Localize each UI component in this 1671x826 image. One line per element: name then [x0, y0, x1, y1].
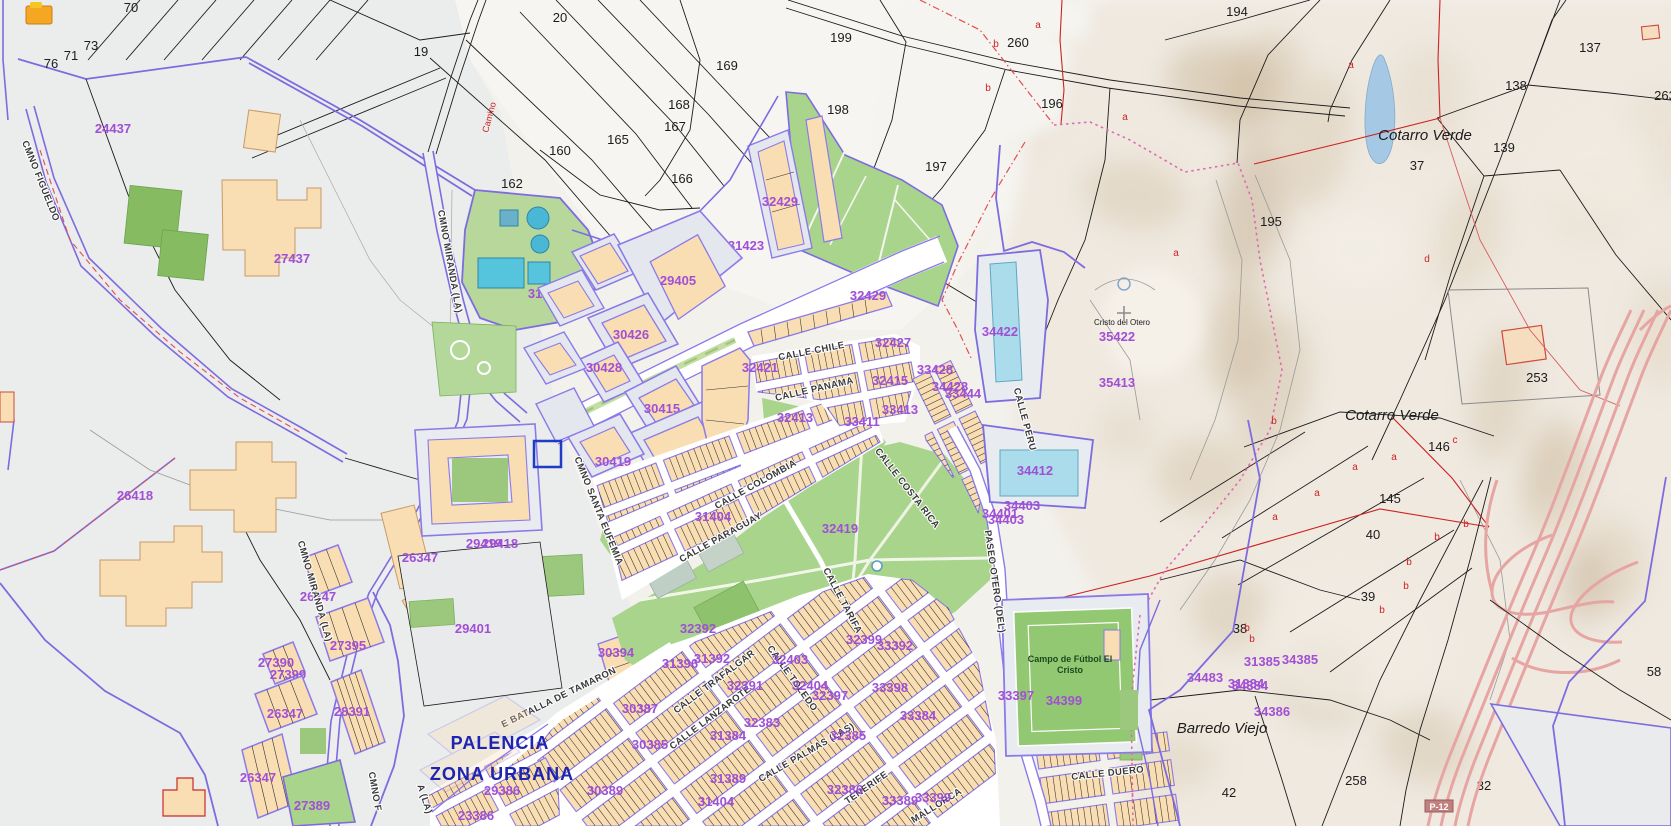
svg-text:39: 39	[1361, 589, 1375, 604]
svg-text:32421: 32421	[742, 360, 778, 375]
svg-text:b: b	[1271, 416, 1277, 427]
svg-text:19: 19	[414, 44, 428, 59]
svg-text:23386: 23386	[458, 808, 494, 823]
svg-text:31396: 31396	[662, 656, 698, 671]
svg-text:34385: 34385	[1282, 652, 1318, 667]
svg-text:30389: 30389	[587, 783, 623, 798]
svg-text:33392: 33392	[877, 638, 913, 653]
svg-text:35413: 35413	[1099, 375, 1135, 390]
svg-text:a: a	[1352, 462, 1358, 473]
svg-text:195: 195	[1260, 214, 1282, 229]
svg-text:70: 70	[124, 0, 138, 15]
svg-text:26418: 26418	[117, 488, 153, 503]
svg-text:253: 253	[1526, 370, 1548, 385]
svg-text:a: a	[1122, 112, 1128, 123]
svg-text:27437: 27437	[274, 251, 310, 266]
svg-text:31392: 31392	[694, 651, 730, 666]
svg-text:29386: 29386	[484, 783, 520, 798]
svg-text:b: b	[1434, 532, 1440, 543]
svg-text:34386: 34386	[1254, 704, 1290, 719]
svg-text:199: 199	[830, 30, 852, 45]
svg-text:32427: 32427	[875, 335, 911, 350]
svg-text:258: 258	[1345, 773, 1367, 788]
svg-text:20: 20	[553, 10, 567, 25]
svg-text:32391: 32391	[727, 678, 763, 693]
svg-text:30394: 30394	[598, 645, 635, 660]
svg-text:Cotarro Verde: Cotarro Verde	[1378, 127, 1472, 144]
svg-text:Campo de Fútbol El: Campo de Fútbol El	[1028, 654, 1113, 664]
svg-text:b: b	[993, 39, 999, 50]
svg-text:32429: 32429	[762, 194, 798, 209]
svg-text:a: a	[1348, 60, 1354, 71]
svg-text:35422: 35422	[1099, 329, 1135, 344]
svg-text:31384: 31384	[1228, 676, 1265, 691]
svg-text:b: b	[1249, 634, 1255, 645]
svg-text:Barredo Viejo: Barredo Viejo	[1177, 720, 1268, 737]
svg-text:73: 73	[84, 38, 98, 53]
svg-text:26347: 26347	[402, 550, 438, 565]
svg-text:32397: 32397	[812, 688, 848, 703]
svg-text:28391: 28391	[334, 704, 370, 719]
svg-text:32403: 32403	[772, 652, 808, 667]
svg-text:32383: 32383	[744, 715, 780, 730]
svg-text:c: c	[1453, 435, 1458, 446]
svg-text:30426: 30426	[613, 327, 649, 342]
svg-text:30387: 30387	[622, 701, 658, 716]
svg-text:PALENCIA: PALENCIA	[451, 733, 550, 753]
svg-text:263: 263	[1654, 88, 1671, 103]
svg-text:Cotarro Verde: Cotarro Verde	[1345, 407, 1439, 424]
svg-text:169: 169	[716, 58, 738, 73]
svg-text:33398: 33398	[872, 680, 908, 695]
svg-text:31384: 31384	[710, 728, 747, 743]
svg-text:32386: 32386	[827, 782, 863, 797]
svg-text:34412: 34412	[1017, 463, 1053, 478]
svg-text:33399: 33399	[915, 790, 951, 805]
svg-text:29405: 29405	[660, 273, 696, 288]
svg-text:167: 167	[664, 119, 686, 134]
svg-text:196: 196	[1041, 96, 1063, 111]
svg-text:33411: 33411	[844, 414, 879, 429]
svg-text:32419: 32419	[822, 521, 858, 536]
svg-text:33397: 33397	[998, 688, 1034, 703]
svg-text:26347: 26347	[240, 770, 276, 785]
svg-text:Cristo del Otero: Cristo del Otero	[1094, 318, 1151, 327]
svg-text:146: 146	[1428, 439, 1450, 454]
svg-text:a: a	[1035, 20, 1041, 31]
svg-text:34422: 34422	[982, 324, 1018, 339]
svg-text:42: 42	[1222, 785, 1236, 800]
svg-text:197: 197	[925, 159, 947, 174]
svg-text:168: 168	[668, 97, 690, 112]
svg-text:40: 40	[1366, 527, 1380, 542]
svg-text:26347: 26347	[267, 706, 303, 721]
svg-text:a: a	[1272, 512, 1278, 523]
svg-text:194: 194	[1226, 4, 1248, 19]
svg-text:162: 162	[501, 176, 523, 191]
svg-text:165: 165	[607, 132, 629, 147]
svg-text:33413: 33413	[882, 402, 918, 417]
svg-text:160: 160	[549, 143, 571, 158]
svg-text:137: 137	[1579, 40, 1601, 55]
svg-text:31385: 31385	[1244, 654, 1280, 669]
svg-text:31404: 31404	[695, 509, 732, 524]
svg-text:b: b	[985, 83, 991, 94]
svg-text:27395: 27395	[330, 638, 366, 653]
svg-text:29401: 29401	[455, 621, 491, 636]
svg-text:166: 166	[671, 171, 693, 186]
svg-text:a: a	[1314, 488, 1320, 499]
svg-text:d: d	[1424, 254, 1430, 265]
svg-text:260: 260	[1007, 35, 1029, 50]
svg-text:29418: 29418	[482, 536, 518, 551]
svg-text:71: 71	[64, 48, 78, 63]
svg-text:32415: 32415	[872, 373, 908, 388]
svg-text:58: 58	[1647, 664, 1661, 679]
svg-text:a: a	[1391, 452, 1397, 463]
svg-text:76: 76	[44, 56, 58, 71]
svg-text:33384: 33384	[900, 708, 937, 723]
svg-text:37: 37	[1410, 158, 1424, 173]
svg-text:34401: 34401	[982, 506, 1018, 521]
svg-text:a: a	[1173, 248, 1179, 259]
svg-text:b: b	[1244, 623, 1250, 634]
svg-text:32392: 32392	[680, 621, 716, 636]
svg-text:31404: 31404	[698, 794, 735, 809]
svg-text:138: 138	[1505, 78, 1527, 93]
svg-text:34399: 34399	[1046, 693, 1082, 708]
svg-text:Cristo: Cristo	[1057, 665, 1084, 675]
svg-text:ZONA URBANA: ZONA URBANA	[430, 764, 574, 784]
svg-text:33444: 33444	[945, 386, 982, 401]
svg-text:33389: 33389	[882, 793, 918, 808]
svg-text:b: b	[1463, 519, 1469, 530]
svg-text:32385: 32385	[830, 728, 866, 743]
svg-text:33428: 33428	[917, 362, 953, 377]
svg-text:b: b	[1406, 557, 1412, 568]
svg-text:30385: 30385	[632, 737, 668, 752]
svg-text:30428: 30428	[586, 360, 622, 375]
svg-text:31389: 31389	[710, 771, 746, 786]
svg-text:32413: 32413	[777, 410, 813, 425]
svg-text:b: b	[1379, 605, 1385, 616]
svg-text:b: b	[1403, 581, 1409, 592]
svg-text:32429: 32429	[850, 288, 886, 303]
svg-text:139: 139	[1493, 140, 1515, 155]
svg-text:27389: 27389	[294, 798, 330, 813]
svg-text:24437: 24437	[95, 121, 131, 136]
svg-text:198: 198	[827, 102, 849, 117]
svg-text:145: 145	[1379, 491, 1401, 506]
svg-text:P-12: P-12	[1429, 802, 1448, 812]
